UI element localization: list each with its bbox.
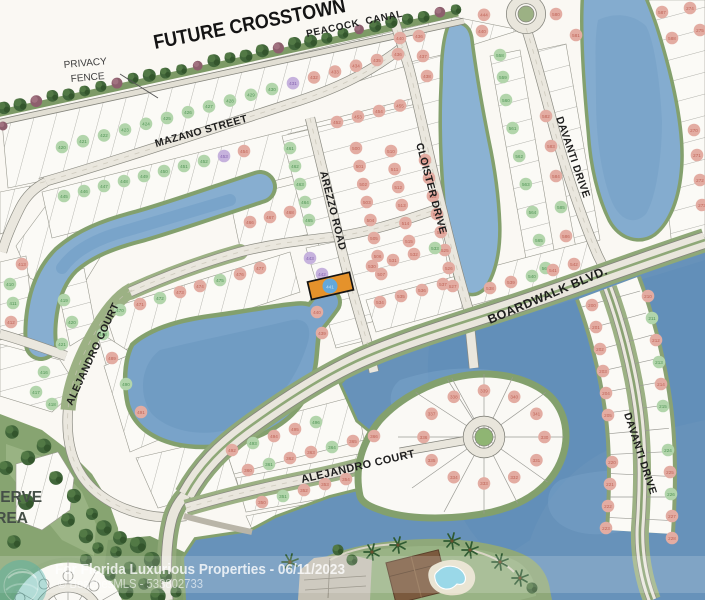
- svg-text:466: 466: [246, 220, 254, 225]
- svg-text:527: 527: [449, 284, 457, 289]
- svg-text:506: 506: [374, 254, 382, 259]
- svg-text:540: 540: [528, 274, 536, 279]
- svg-text:213: 213: [655, 360, 663, 365]
- svg-text:270: 270: [690, 128, 698, 133]
- svg-text:331: 331: [533, 458, 541, 463]
- svg-text:435: 435: [373, 58, 381, 63]
- svg-text:476: 476: [236, 272, 244, 277]
- svg-text:420: 420: [68, 320, 76, 325]
- svg-text:334: 334: [450, 475, 458, 480]
- svg-text:585: 585: [557, 205, 565, 210]
- svg-text:475: 475: [216, 278, 224, 283]
- svg-text:228: 228: [668, 536, 676, 541]
- svg-text:225: 225: [666, 470, 674, 475]
- svg-text:452: 452: [333, 120, 341, 125]
- svg-text:447: 447: [100, 184, 108, 189]
- svg-text:474: 474: [196, 284, 204, 289]
- svg-text:450: 450: [160, 169, 168, 174]
- svg-text:215: 215: [659, 404, 667, 409]
- svg-text:436: 436: [415, 34, 423, 39]
- svg-text:221: 221: [606, 482, 614, 487]
- svg-text:584: 584: [552, 174, 560, 179]
- svg-text:364: 364: [328, 445, 336, 450]
- svg-text:426: 426: [184, 110, 192, 115]
- svg-text:453: 453: [220, 154, 228, 159]
- svg-text:AREA: AREA: [0, 510, 28, 527]
- svg-text:336: 336: [420, 435, 428, 440]
- svg-text:272: 272: [696, 178, 704, 183]
- svg-text:580: 580: [552, 12, 560, 17]
- svg-text:416: 416: [40, 370, 48, 375]
- svg-text:332: 332: [510, 475, 518, 480]
- svg-text:354: 354: [342, 477, 350, 482]
- svg-text:411: 411: [9, 301, 17, 306]
- svg-text:352: 352: [300, 488, 308, 493]
- svg-text:428: 428: [226, 98, 234, 103]
- svg-text:562: 562: [515, 154, 523, 159]
- svg-text:445: 445: [60, 194, 68, 199]
- svg-text:526: 526: [445, 266, 453, 271]
- svg-text:539: 539: [507, 280, 515, 285]
- svg-text:424: 424: [142, 122, 150, 127]
- svg-text:PRESERVE: PRESERVE: [0, 489, 42, 506]
- svg-text:561: 561: [509, 126, 517, 131]
- svg-text:338: 338: [450, 395, 458, 400]
- svg-text:330: 330: [541, 435, 549, 440]
- svg-text:582: 582: [542, 114, 550, 119]
- svg-text:420: 420: [58, 145, 66, 150]
- svg-text:339: 339: [480, 388, 488, 393]
- svg-text:477: 477: [256, 266, 264, 271]
- svg-text:513: 513: [398, 203, 406, 208]
- svg-text:437: 437: [419, 54, 427, 59]
- svg-text:214: 214: [657, 382, 665, 387]
- svg-text:425: 425: [163, 116, 171, 121]
- svg-text:454: 454: [375, 109, 383, 114]
- svg-text:451: 451: [180, 164, 188, 169]
- svg-text:351: 351: [279, 494, 287, 499]
- svg-text:514: 514: [402, 221, 410, 226]
- svg-text:559: 559: [499, 75, 507, 80]
- svg-text:439: 439: [318, 331, 326, 336]
- svg-text:464: 464: [301, 200, 309, 205]
- svg-text:531: 531: [389, 258, 397, 263]
- svg-text:417: 417: [32, 390, 40, 395]
- svg-text:434: 434: [352, 64, 360, 69]
- svg-text:512: 512: [394, 185, 402, 190]
- svg-text:350: 350: [258, 500, 266, 505]
- svg-text:427: 427: [205, 104, 213, 109]
- svg-text:201: 201: [592, 325, 600, 330]
- svg-text:465: 465: [305, 218, 313, 223]
- svg-text:537: 537: [439, 282, 447, 287]
- svg-text:588: 588: [668, 36, 676, 41]
- svg-text:413: 413: [18, 262, 26, 267]
- svg-text:492: 492: [228, 448, 236, 453]
- svg-text:366: 366: [370, 434, 378, 439]
- svg-text:542: 542: [570, 262, 578, 267]
- svg-text:337: 337: [428, 412, 436, 417]
- svg-text:560: 560: [502, 98, 510, 103]
- svg-text:224: 224: [664, 448, 672, 453]
- svg-text:227: 227: [668, 514, 676, 519]
- svg-text:419: 419: [60, 298, 68, 303]
- svg-text:438: 438: [423, 74, 431, 79]
- svg-text:491: 491: [137, 410, 145, 415]
- svg-text:587: 587: [658, 10, 666, 15]
- svg-text:453: 453: [354, 114, 362, 119]
- svg-text:226: 226: [667, 492, 675, 497]
- svg-text:536: 536: [418, 288, 426, 293]
- svg-text:430: 430: [268, 87, 276, 92]
- svg-text:© BeachesMLS - 533802733: © BeachesMLS - 533802733: [58, 577, 203, 591]
- svg-text:534: 534: [376, 300, 384, 305]
- svg-text:421: 421: [79, 139, 87, 144]
- svg-text:467: 467: [266, 215, 274, 220]
- svg-text:442: 442: [318, 272, 326, 277]
- svg-text:510: 510: [387, 149, 395, 154]
- svg-text:429: 429: [247, 93, 255, 98]
- svg-text:273: 273: [698, 203, 705, 208]
- svg-text:455: 455: [396, 103, 404, 108]
- svg-text:200: 200: [588, 303, 596, 308]
- svg-text:494: 494: [270, 434, 278, 439]
- svg-text:452: 452: [200, 159, 208, 164]
- svg-text:538: 538: [486, 286, 494, 291]
- svg-text:449: 449: [140, 174, 148, 179]
- svg-text:583: 583: [547, 144, 555, 149]
- svg-text:422: 422: [100, 133, 108, 138]
- svg-text:461: 461: [286, 146, 294, 151]
- svg-text:365: 365: [349, 439, 357, 444]
- svg-text:493: 493: [249, 441, 257, 446]
- svg-text:202: 202: [596, 347, 604, 352]
- svg-text:448: 448: [120, 179, 128, 184]
- svg-text:511: 511: [391, 167, 399, 172]
- svg-text:363: 363: [307, 450, 315, 455]
- svg-text:436: 436: [394, 52, 402, 57]
- svg-text:565: 565: [535, 238, 543, 243]
- svg-text:440: 440: [396, 36, 404, 41]
- svg-text:500: 500: [352, 146, 360, 151]
- svg-text:418: 418: [48, 402, 56, 407]
- svg-text:410: 410: [6, 282, 14, 287]
- svg-text:503: 503: [363, 200, 371, 205]
- svg-text:586: 586: [562, 234, 570, 239]
- svg-text:530: 530: [368, 264, 376, 269]
- svg-text:212: 212: [652, 338, 660, 343]
- svg-text:432: 432: [310, 75, 318, 80]
- svg-text:210: 210: [644, 294, 652, 299]
- svg-text:440: 440: [478, 29, 486, 34]
- svg-text:472: 472: [156, 296, 164, 301]
- svg-text:335: 335: [428, 458, 436, 463]
- svg-text:454: 454: [240, 149, 248, 154]
- svg-text:211: 211: [648, 316, 656, 321]
- svg-text:496: 496: [312, 420, 320, 425]
- svg-text:489: 489: [108, 356, 116, 361]
- svg-text:421: 421: [58, 342, 66, 347]
- svg-text:362: 362: [286, 456, 294, 461]
- svg-text:446: 446: [80, 189, 88, 194]
- svg-text:333: 333: [480, 481, 488, 486]
- svg-text:468: 468: [286, 210, 294, 215]
- svg-text:507: 507: [377, 272, 385, 277]
- svg-text:271: 271: [693, 153, 701, 158]
- svg-text:222: 222: [604, 504, 612, 509]
- svg-text:535: 535: [397, 294, 405, 299]
- svg-text:361: 361: [265, 462, 273, 467]
- svg-text:462: 462: [291, 164, 299, 169]
- svg-text:501: 501: [356, 164, 364, 169]
- svg-text:505: 505: [370, 236, 378, 241]
- svg-text:441: 441: [326, 284, 334, 289]
- svg-text:203: 203: [599, 369, 607, 374]
- svg-text:205: 205: [604, 413, 612, 418]
- svg-text:340: 340: [510, 395, 518, 400]
- svg-text:431: 431: [289, 81, 297, 86]
- svg-text:533: 533: [431, 246, 439, 251]
- svg-text:341: 341: [533, 412, 541, 417]
- svg-text:412: 412: [7, 320, 15, 325]
- svg-text:440: 440: [313, 310, 321, 315]
- svg-text:433: 433: [331, 69, 339, 74]
- svg-text:220: 220: [608, 460, 616, 465]
- svg-text:581: 581: [572, 33, 580, 38]
- svg-text:274: 274: [686, 6, 694, 11]
- svg-text:563: 563: [522, 182, 530, 187]
- svg-text:564: 564: [529, 210, 537, 215]
- svg-text:558: 558: [496, 53, 504, 58]
- svg-text:463: 463: [296, 182, 304, 187]
- svg-text:502: 502: [359, 182, 367, 187]
- svg-text:204: 204: [602, 391, 610, 396]
- svg-text:541: 541: [549, 268, 557, 273]
- svg-text:525: 525: [441, 248, 449, 253]
- svg-text:515: 515: [405, 239, 413, 244]
- svg-text:444: 444: [480, 13, 488, 18]
- svg-text:504: 504: [367, 218, 375, 223]
- svg-text:353: 353: [321, 482, 329, 487]
- svg-text:471: 471: [136, 302, 144, 307]
- svg-text:360: 360: [244, 468, 252, 473]
- svg-text:532: 532: [410, 252, 418, 257]
- svg-text:223: 223: [602, 526, 610, 531]
- svg-text:490: 490: [122, 382, 130, 387]
- svg-text:443: 443: [306, 256, 314, 261]
- svg-text:473: 473: [176, 290, 184, 295]
- svg-text:495: 495: [291, 427, 299, 432]
- svg-text:275: 275: [696, 28, 704, 33]
- svg-text:For Florida Luxurious Properti: For Florida Luxurious Properties - 06/11…: [55, 561, 345, 578]
- svg-text:423: 423: [121, 127, 129, 132]
